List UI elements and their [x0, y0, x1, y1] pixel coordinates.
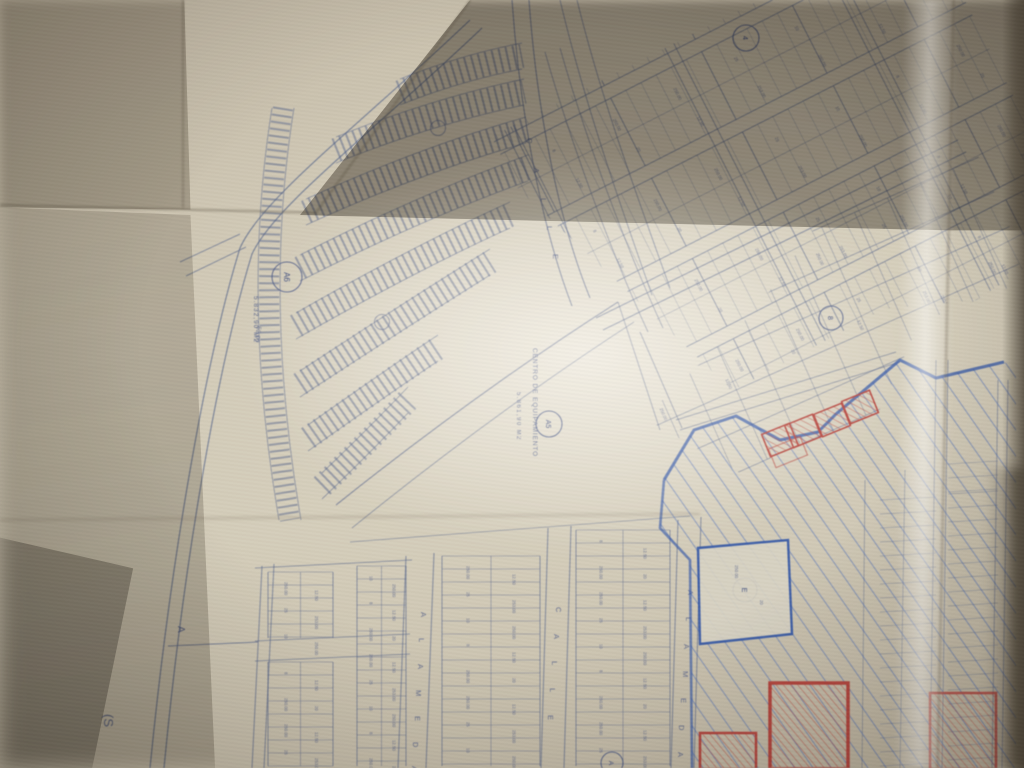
printed-line	[677, 266, 712, 334]
printed-line	[269, 108, 290, 520]
tiny-parcel-number: 250.00	[466, 566, 471, 580]
printed-line	[783, 212, 818, 280]
tiny-parcel-number: 25	[599, 748, 604, 753]
street-name-letter: L	[548, 688, 557, 692]
tiny-parcel-number: 12.50	[643, 548, 648, 559]
tiny-parcel-number: 25	[283, 750, 288, 755]
tiny-parcel-number: 250.00	[653, 198, 664, 213]
tiny-parcel-number: 25	[466, 722, 471, 727]
printed-line	[545, 52, 648, 332]
tiny-parcel-number: 10	[466, 618, 471, 623]
printed-line	[541, 336, 576, 404]
tiny-parcel-number: 10	[599, 644, 604, 649]
tiny-parcel-number: 12.50	[534, 97, 544, 109]
tiny-parcel-number: 253.00	[716, 4, 727, 19]
circle-label-a5: A5	[544, 420, 551, 429]
tiny-parcel-number: 12.50	[314, 680, 319, 691]
tiny-parcel-number: 250.00	[391, 584, 396, 598]
printed-line	[859, 174, 894, 242]
printed-line	[688, 362, 723, 430]
red-parcel	[700, 733, 756, 768]
tiny-parcel-number: 12.50	[391, 662, 396, 673]
tiny-parcel-number: 12.50	[643, 678, 648, 689]
tiny-parcel-number: 250.00	[632, 7, 643, 22]
printed-line	[756, 256, 833, 430]
printed-line	[300, 181, 528, 281]
printed-line	[652, 178, 687, 246]
tiny-parcel-number: 10	[368, 706, 373, 711]
circle-label-mid: 8	[826, 316, 833, 320]
tiny-parcel-number: 12.50	[655, 35, 665, 47]
circle-label-bottom: A	[607, 761, 614, 766]
printed-line	[733, 339, 768, 407]
printed-line	[560, 48, 663, 328]
tiny-parcel-number: 25	[815, 216, 822, 223]
printed-line	[577, 0, 670, 288]
printed-line	[591, 330, 668, 504]
printed-line	[567, 424, 602, 492]
printed-line	[829, 189, 864, 257]
tiny-parcel-number: 250.00	[512, 756, 517, 768]
printed-line	[692, 258, 727, 326]
tiny-parcel-number: 253.00	[314, 758, 319, 768]
printed-line	[758, 124, 793, 192]
printed-line	[721, 0, 756, 8]
tiny-parcel-number: 250.00	[956, 44, 967, 59]
tiny-parcel-number: 25	[599, 618, 604, 623]
tiny-parcel-number: 250.00	[466, 670, 471, 684]
tiny-parcel-number: 8	[466, 644, 471, 647]
tiny-parcel-number: 250.00	[368, 758, 373, 768]
printed-line	[582, 416, 617, 484]
printed-line	[515, 248, 550, 316]
tiny-parcel-number: 253.00	[391, 688, 396, 702]
tiny-parcel-number: 253.00	[643, 756, 648, 768]
printed-line	[630, 0, 665, 55]
tiny-parcel-number: 8	[674, 389, 680, 394]
printed-line	[555, 26, 590, 94]
tiny-parcel-number: 25	[368, 680, 373, 685]
tiny-parcel-number: 12.50	[512, 574, 517, 585]
printed-line	[336, 302, 618, 505]
street-name-letter: E	[551, 254, 560, 259]
printed-line	[661, 0, 696, 39]
printed-line	[818, 93, 853, 161]
printed-line	[573, 118, 1024, 338]
tiny-parcel-number: 25	[466, 592, 471, 597]
printed-line	[965, 120, 1000, 188]
tiny-parcel-number: 12.50	[959, 183, 969, 195]
tiny-parcel-number: 250.00	[795, 327, 806, 342]
printed-line	[546, 232, 581, 300]
tiny-parcel-number: 25	[856, 297, 863, 304]
printed-line	[255, 560, 412, 568]
printed-line	[788, 109, 823, 177]
printed-line	[541, 528, 548, 768]
printed-line	[524, 41, 559, 109]
tiny-parcel-number: 10	[531, 260, 538, 267]
street-name-letter: A	[419, 612, 428, 617]
tiny-parcel-number: 20	[979, 72, 986, 79]
printed-line	[823, 0, 858, 58]
printed-line	[747, 29, 782, 97]
tiny-parcel-number: 20	[391, 636, 396, 641]
printed-line	[621, 194, 656, 262]
tiny-parcel-number: 10	[875, 185, 882, 192]
printed-line	[585, 10, 620, 78]
tiny-parcel-number: 250.00	[555, 288, 566, 303]
printed-line	[612, 400, 647, 468]
printed-line	[970, 16, 1005, 84]
printed-line	[662, 274, 697, 342]
tiny-parcel-number: 250.00	[283, 582, 288, 596]
printed-line	[686, 60, 721, 128]
street-name-letter: A	[416, 664, 425, 669]
tiny-parcel-number: 250.00	[283, 724, 288, 738]
printed-line	[485, 263, 520, 331]
printed-line	[426, 553, 434, 768]
printed-line	[646, 0, 681, 47]
printed-line	[564, 526, 571, 768]
printed-line	[164, 28, 482, 768]
printed-line	[626, 90, 661, 158]
tiny-parcel-number: 10	[283, 634, 288, 639]
printed-line	[512, 0, 572, 306]
printed-line	[718, 346, 753, 414]
printed-line	[706, 0, 741, 16]
tiny-parcel-number: 250.00	[754, 247, 765, 262]
tiny-parcel-number: 250.00	[599, 722, 604, 736]
tiny-parcel-number: 8	[368, 732, 373, 735]
margin-note: (S	[101, 714, 116, 727]
street-name-letter: C	[554, 607, 563, 613]
map-drawing: CALLECALLEALAMEDAALAMEDA 250.0012.502525…	[0, 0, 1024, 768]
tiny-parcel-number: 250.00	[659, 407, 669, 422]
tiny-parcel-number: 20	[512, 678, 517, 683]
tiny-parcel-number: 250.00	[643, 652, 648, 666]
printed-line	[762, 21, 797, 89]
tiny-parcel-number: 250.00	[599, 592, 604, 606]
printed-line	[627, 393, 662, 461]
tiny-parcel-number: 12.50	[575, 177, 585, 189]
tiny-parcel-number: 10	[368, 576, 373, 581]
street-name-letter: A	[552, 634, 561, 639]
printed-line	[580, 114, 615, 182]
printed-line	[186, 247, 246, 276]
tiny-parcel-number: 250.00	[466, 696, 471, 710]
printed-line	[552, 431, 587, 499]
tiny-parcel-number: 12.50	[818, 356, 828, 368]
tiny-parcel-number: 250.00	[672, 87, 683, 102]
printed-line	[803, 101, 838, 169]
street-name-letter: L	[545, 226, 554, 230]
printed-line	[168, 642, 258, 646]
tiny-parcel-number: 25	[283, 608, 288, 613]
tiny-parcel-number: 253.00	[756, 84, 767, 99]
tiny-parcel-number: 8	[551, 149, 557, 154]
tiny-parcel-number: 10	[572, 340, 579, 347]
printed-line	[615, 0, 650, 62]
paper-crease	[182, 0, 184, 208]
tiny-parcel-number: 10	[613, 420, 620, 427]
tiny-parcel-number: 12.50	[616, 257, 626, 269]
tiny-parcel-number: 8	[592, 229, 598, 234]
tiny-parcel-number: 10	[834, 105, 841, 112]
printed-line	[848, 78, 883, 146]
circle-label-a6: A6	[282, 272, 291, 282]
tiny-parcel-number: 250.00	[368, 628, 373, 642]
tiny-parcel-number: 25	[733, 56, 740, 63]
tiny-parcel-number: 20	[314, 706, 319, 711]
tiny-parcel-number: 20	[790, 349, 797, 356]
tiny-parcel-number: 20	[643, 574, 648, 579]
tiny-parcel-number: 8	[283, 672, 288, 675]
tiny-parcel-number: 8	[683, 311, 689, 316]
printed-line	[794, 308, 829, 376]
printed-line	[798, 204, 833, 272]
tiny-parcel-number: 250.00	[599, 566, 604, 580]
printed-line	[955, 24, 990, 92]
printed-line	[723, 243, 758, 311]
printed-line	[708, 251, 743, 319]
street-name-letter: L	[417, 638, 426, 642]
tiny-parcel-number: 253.00	[838, 245, 849, 260]
printed-line	[264, 564, 274, 768]
tiny-parcel-number: 25	[881, 223, 888, 230]
tiny-parcel-number: 250.00	[817, 54, 828, 69]
printed-line	[738, 235, 773, 303]
printed-line	[824, 292, 859, 360]
tiny-parcel-number: 253.00	[512, 730, 517, 744]
printed-line	[350, 516, 690, 542]
printed-line	[308, 335, 438, 425]
printed-line	[961, 223, 996, 291]
fan-shaped-lot-rows	[258, 43, 528, 520]
center-facility-name: CENTRO DE EQUIPAMIENTO	[531, 348, 538, 457]
tiny-parcel-number: 8	[599, 540, 604, 543]
printed-line	[252, 566, 262, 768]
printed-line	[255, 654, 410, 661]
tiny-parcel-number: 250.00	[713, 167, 724, 182]
tiny-parcel-number: 250.00	[858, 134, 869, 149]
tiny-parcel-number: 12.50	[643, 600, 648, 611]
street-name-letter: A	[676, 752, 685, 757]
printed-line	[600, 2, 635, 70]
printed-line	[641, 83, 676, 151]
printed-line	[596, 106, 631, 174]
printed-line	[500, 255, 535, 323]
printed-line	[570, 18, 605, 86]
circle-label-reserved: E	[740, 588, 747, 593]
tiny-parcel-number: 12.50	[512, 652, 517, 663]
tiny-parcel-number: 250.00	[749, 281, 759, 296]
printed-line	[618, 302, 660, 430]
center-facility-area: 5.861,90 M2	[515, 392, 521, 441]
tiny-parcel-number: 12.50	[656, 337, 666, 349]
printed-line	[647, 282, 682, 350]
tiny-parcel-number: 12.50	[391, 740, 396, 751]
red-parcel-large	[770, 683, 848, 768]
tiny-parcel-number: 8	[599, 670, 604, 673]
street-name-letter: E	[413, 716, 422, 721]
tiny-parcel-number: 250.00	[596, 368, 607, 383]
printed-line	[530, 240, 565, 308]
tiny-parcel-number: 250.00	[314, 642, 319, 656]
section-marker-a: A	[175, 626, 186, 633]
fold-highlight	[893, 0, 958, 768]
printed-line	[667, 171, 702, 239]
street-name-letter: L	[550, 661, 559, 665]
printed-line	[571, 320, 606, 388]
tiny-parcel-number: 250.00	[734, 358, 745, 373]
street-name-letter: M	[414, 690, 423, 696]
printed-line	[676, 0, 711, 32]
tiny-parcel-number: 25	[774, 136, 781, 143]
printed-line	[565, 121, 600, 189]
printed-line	[702, 52, 737, 120]
printed-line	[602, 305, 637, 373]
tiny-parcel-number: 10	[654, 500, 661, 507]
printed-line	[597, 408, 632, 476]
printed-line	[742, 132, 777, 200]
printed-line	[691, 0, 726, 24]
street-name-letter: D	[677, 725, 686, 731]
street-name-letter: E	[679, 698, 688, 703]
printed-line	[809, 300, 844, 368]
circle-label-top: 4	[741, 36, 748, 40]
tiny-parcel-number: 250.00	[283, 698, 288, 712]
printed-line	[671, 520, 678, 768]
photographed-subdivision-map: CALLECALLEALAMEDAALAMEDA 250.0012.502525…	[0, 0, 1024, 768]
tiny-parcel-number: 253.00	[314, 616, 319, 630]
tiny-parcel-number: 250.00	[987, 261, 997, 276]
tiny-parcel-number: 12.50	[512, 704, 517, 715]
tiny-parcel-number: 250.00	[514, 208, 525, 223]
tiny-parcel-number: 12.50	[391, 610, 396, 621]
tiny-parcel-number: 253.00	[643, 626, 648, 640]
printed-line	[398, 556, 406, 768]
tiny-parcel-number: 10	[466, 748, 471, 753]
tiny-parcel-number: 8	[895, 74, 901, 79]
tiny-parcel-number: 250.00	[637, 448, 648, 463]
street-name-letter: M	[681, 671, 690, 677]
street-name-letter: E	[546, 715, 555, 720]
printed-line	[561, 225, 596, 293]
printed-line	[180, 234, 240, 262]
printed-line	[853, 0, 888, 42]
photo-edge-shadow	[986, 468, 1024, 768]
tiny-parcel-number: 12.50	[314, 590, 319, 601]
printed-line	[624, 0, 865, 440]
tiny-parcel-number: 12.50	[643, 730, 648, 741]
tiny-parcel-number: 250.00	[368, 654, 373, 668]
tiny-parcel-number: 20	[643, 704, 648, 709]
tiny-parcel-number: 253.00	[797, 165, 808, 180]
tiny-parcel-number: 250.00	[512, 626, 517, 640]
printed-line	[697, 155, 732, 223]
printed-line	[308, 348, 438, 438]
printed-line	[777, 13, 812, 81]
tiny-parcel-number: 253.00	[512, 600, 517, 614]
tiny-parcel-number: 20	[759, 600, 764, 605]
printed-line	[736, 0, 771, 1]
printed-line	[864, 70, 899, 138]
printed-line	[768, 220, 803, 288]
printed-line	[717, 44, 752, 112]
tiny-parcel-number: 12.50	[878, 23, 888, 35]
tiny-parcel-number: 250.00	[391, 714, 396, 728]
tiny-parcel-number: 10	[957, 346, 964, 353]
tiny-parcel-number: 250.00	[599, 696, 604, 710]
tiny-parcel-number: 250.00	[734, 565, 739, 579]
printed-line	[808, 0, 843, 65]
tiny-parcel-number: 12.50	[314, 732, 319, 743]
printed-line	[617, 297, 652, 365]
street-name-letter: D	[411, 742, 420, 748]
printed-line	[470, 271, 505, 339]
printed-line	[656, 75, 691, 143]
tiny-parcel-number: 253.00	[879, 325, 890, 340]
tiny-parcel-number: 10	[618, 340, 625, 347]
tiny-parcel-number: 10	[794, 25, 801, 32]
printed-line	[586, 312, 621, 380]
printed-line	[352, 322, 634, 528]
printed-line	[682, 163, 717, 231]
printed-line	[727, 140, 762, 208]
tiny-parcel-number: 8	[368, 602, 373, 605]
